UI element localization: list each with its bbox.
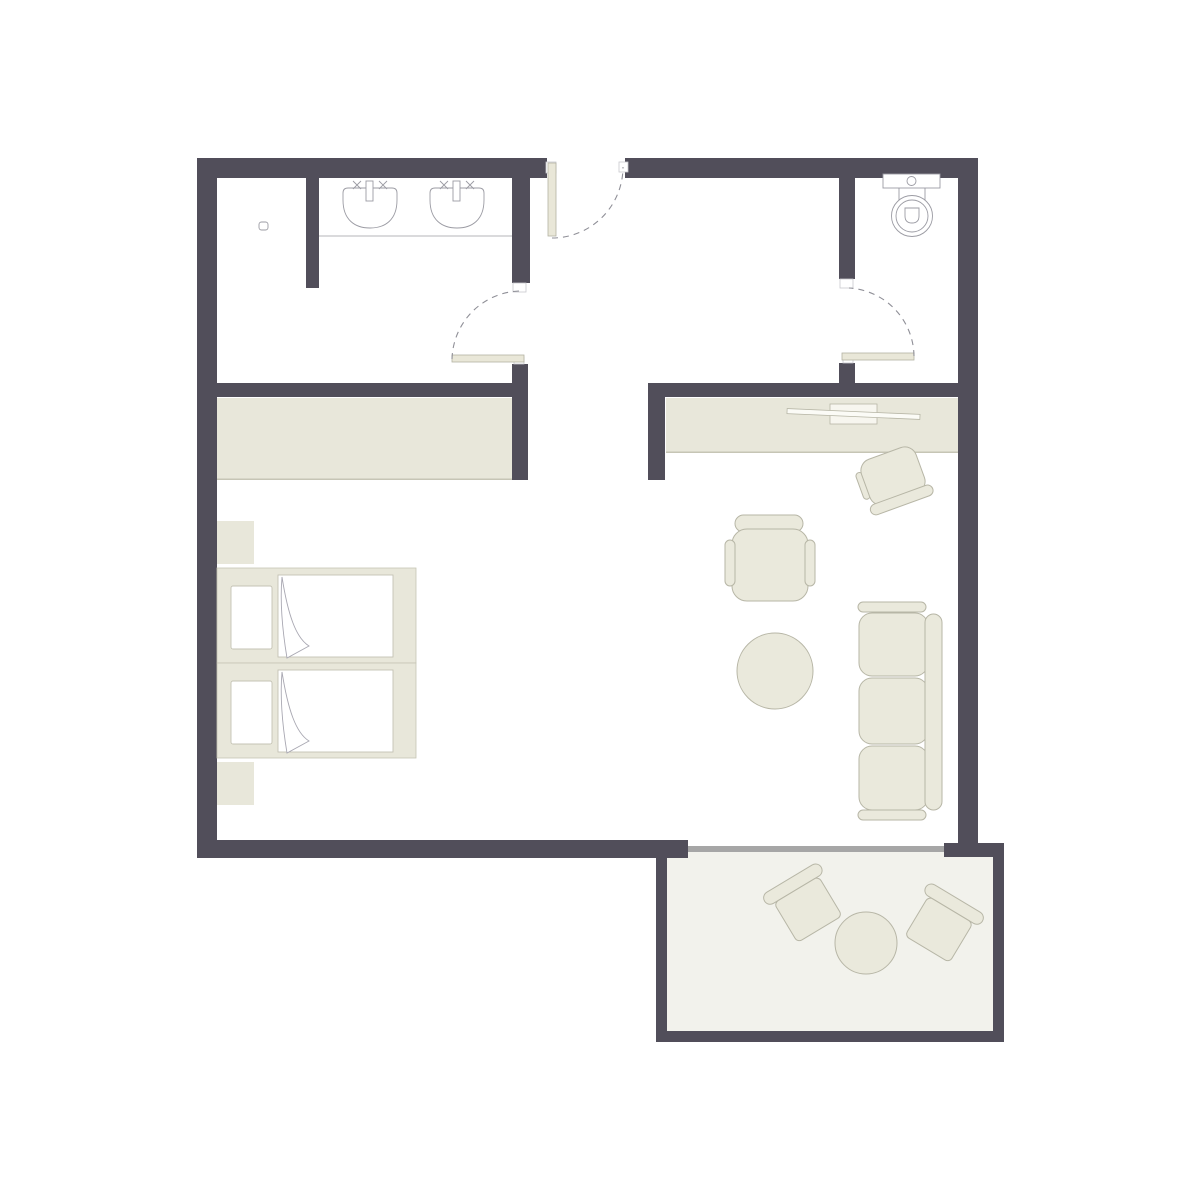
entry-door <box>548 163 623 238</box>
toilet <box>883 174 940 237</box>
sink-left-faucet <box>366 181 373 201</box>
wall-balcony-bottom <box>656 1031 1004 1042</box>
wardrobe <box>217 398 512 480</box>
sink-right <box>430 181 484 228</box>
toilet-flush-button <box>907 177 916 186</box>
sofa-cushion-1 <box>859 613 928 676</box>
wall-bottom <box>197 840 688 858</box>
sofa-backrest <box>925 614 942 810</box>
door-jambs <box>513 162 853 364</box>
bathroom-door-swing-arc <box>452 291 519 359</box>
entry-door-swing-arc <box>552 167 623 238</box>
bed-top <box>217 568 416 663</box>
jamb-wc-top <box>840 279 853 288</box>
wc-door-leaf <box>842 353 914 360</box>
armchair-seat <box>732 529 808 601</box>
balcony-table <box>835 912 897 974</box>
wall-shower-divider <box>306 178 319 288</box>
armchair <box>725 515 815 601</box>
wardrobe-front-edge <box>217 479 512 481</box>
sink-right-faucet <box>453 181 460 201</box>
wall-bathroom-door-stub <box>512 364 528 480</box>
bathroom-door <box>452 291 524 362</box>
wall-wc-left <box>839 158 855 279</box>
toilet-bowl-center <box>905 208 919 223</box>
sofa-cushion-3 <box>859 746 928 810</box>
wall-living-divider <box>648 383 978 397</box>
wall-bathroom-right <box>512 158 530 283</box>
sofa <box>858 602 942 820</box>
desk <box>666 398 958 453</box>
sink-left <box>343 181 397 228</box>
bed-bottom-pillow <box>231 681 272 744</box>
office-chair <box>852 442 935 517</box>
floor-plan-canvas <box>0 0 1200 1200</box>
nightstand-top <box>217 521 254 564</box>
coffee-table <box>737 633 813 709</box>
wall-left <box>197 158 217 858</box>
sofa-cushion-2 <box>859 678 928 744</box>
wc-door <box>842 288 914 360</box>
armchair-armrest-right <box>805 540 815 586</box>
bathroom-door-leaf <box>452 355 524 362</box>
wardrobe-body <box>217 398 512 480</box>
wall-living-left <box>648 383 665 480</box>
balcony-sliding-door <box>688 846 944 852</box>
wall-top-left <box>197 158 547 178</box>
sofa-armrest-top <box>858 602 926 612</box>
desk-body <box>666 398 958 453</box>
bed-bottom <box>217 663 416 758</box>
wall-balcony-right <box>993 843 1004 1042</box>
floor-plan-svg <box>0 0 1200 1200</box>
armchair-armrest-left <box>725 540 735 586</box>
nightstand-bottom <box>217 762 254 805</box>
wc-door-swing-arc <box>849 288 914 356</box>
vanity <box>319 181 512 236</box>
bed-top-pillow <box>231 586 272 649</box>
wall-right <box>958 158 978 857</box>
entry-door-leaf <box>548 163 556 236</box>
wall-wc-door-stub <box>839 363 855 397</box>
wall-balcony-left <box>656 843 667 1042</box>
shower-drain <box>259 222 268 230</box>
sofa-armrest-bottom <box>858 810 926 820</box>
wall-bedroom-divider <box>197 383 528 397</box>
jamb-bathroom-top <box>513 283 526 292</box>
